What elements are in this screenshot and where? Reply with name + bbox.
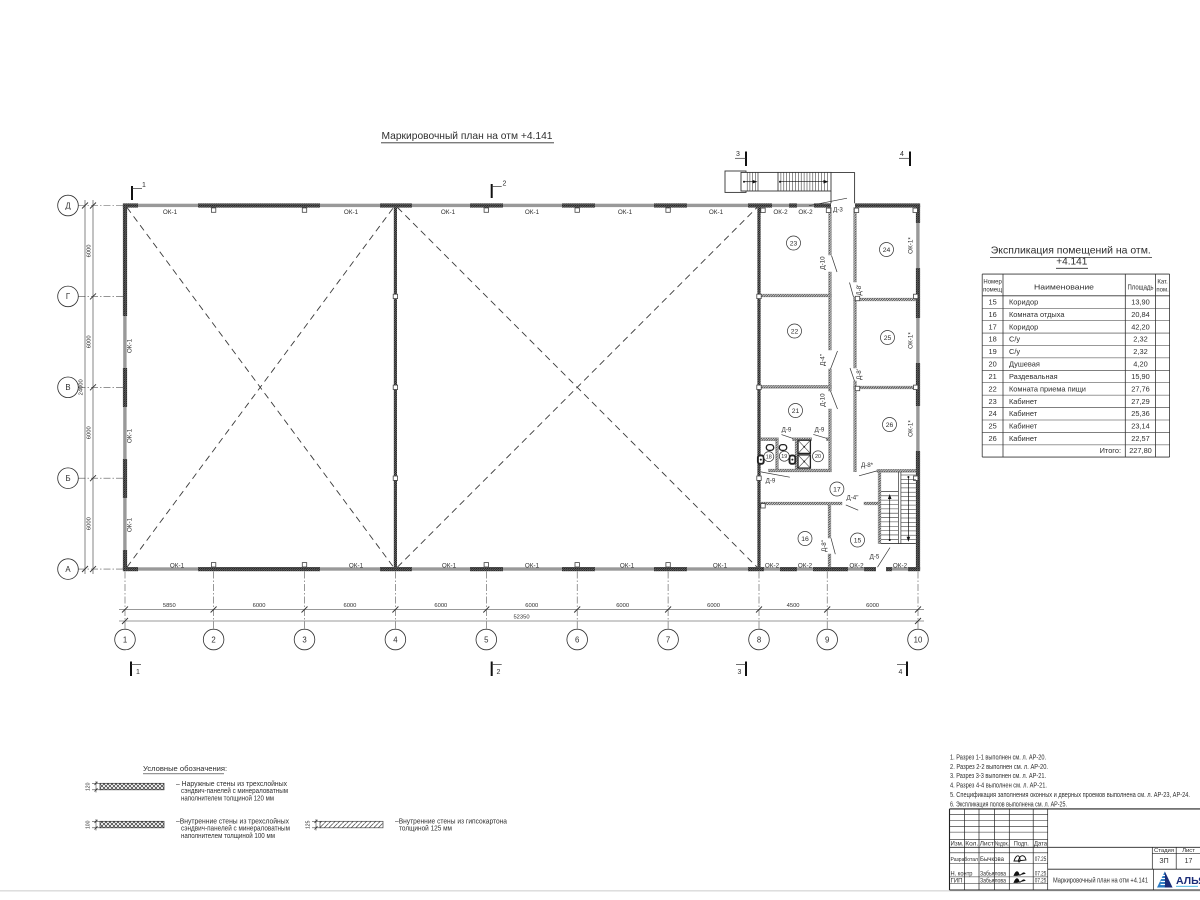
svg-text:4: 4	[899, 669, 903, 676]
svg-text:6000: 6000	[707, 603, 720, 609]
svg-text:1: 1	[123, 635, 127, 644]
svg-text:Д-9: Д-9	[782, 427, 792, 434]
svg-text:3: 3	[736, 151, 740, 158]
svg-text:Кабинет: Кабинет	[1009, 397, 1038, 406]
svg-text:4: 4	[900, 151, 904, 158]
svg-text:Коридор: Коридор	[1009, 297, 1038, 306]
svg-text:3: 3	[738, 669, 742, 676]
svg-text:17: 17	[988, 322, 996, 331]
svg-text:Стадия: Стадия	[1154, 848, 1174, 854]
svg-text:22: 22	[988, 384, 996, 393]
svg-text:Коридор: Коридор	[1009, 322, 1038, 331]
svg-text:Раздевальная: Раздевальная	[1009, 372, 1058, 381]
svg-text:23,14: 23,14	[1131, 422, 1150, 431]
svg-text:Экспликация помещений на отм.: Экспликация помещений на отм.	[991, 246, 1151, 257]
svg-text:Д-4": Д-4"	[819, 354, 826, 366]
svg-text:Номер: Номер	[983, 280, 1002, 286]
svg-text:2: 2	[211, 635, 215, 644]
svg-text:Комната приема пищи: Комната приема пищи	[1009, 384, 1086, 393]
svg-text:07.25: 07.25	[1035, 856, 1047, 863]
svg-text:23: 23	[988, 397, 996, 406]
svg-text:15: 15	[854, 537, 862, 544]
svg-text:ЗП: ЗП	[1159, 858, 1168, 865]
svg-text:07.25: 07.25	[1035, 870, 1047, 877]
svg-text:4: 4	[393, 635, 398, 644]
svg-text:В: В	[65, 383, 70, 392]
svg-text:Д-10: Д-10	[819, 393, 826, 407]
svg-text:наполнителем толщиной 100 мм: наполнителем толщиной 100 мм	[181, 832, 275, 840]
svg-text:2. Разрез 2-2 выполнен см. л.: 2. Разрез 2-2 выполнен см. л. АР-20.	[950, 763, 1048, 771]
svg-text:5. Спецификация заполнения око: 5. Спецификация заполнения оконных и две…	[950, 791, 1190, 799]
svg-text:13,90: 13,90	[1131, 297, 1150, 306]
svg-text:19: 19	[781, 454, 787, 460]
svg-text:26: 26	[988, 434, 996, 443]
svg-text:ОК-1: ОК-1	[442, 562, 457, 569]
svg-text:ОК-1*: ОК-1*	[907, 237, 914, 254]
svg-text:1: 1	[142, 182, 146, 189]
svg-text:5850: 5850	[163, 603, 176, 609]
svg-text:Душевая: Душевая	[1009, 360, 1040, 369]
svg-text:6000: 6000	[86, 426, 92, 439]
svg-text:26: 26	[886, 422, 894, 429]
svg-text:6. Экспликация полов выполнена: 6. Экспликация полов выполнена см. л. АР…	[950, 800, 1067, 808]
svg-text:ГИП: ГИП	[951, 877, 963, 884]
svg-text:Кабинет: Кабинет	[1009, 422, 1038, 431]
svg-text:ОК-1: ОК-1	[344, 209, 359, 216]
svg-text:6000: 6000	[343, 603, 356, 609]
svg-text:1: 1	[136, 669, 140, 676]
svg-text:20,84: 20,84	[1131, 310, 1150, 319]
svg-text:С/у: С/у	[1009, 347, 1020, 356]
svg-text:17: 17	[833, 486, 841, 493]
svg-text:Д-8': Д-8'	[856, 369, 863, 380]
svg-text:Н. контр: Н. контр	[951, 870, 974, 877]
svg-text:Д-8': Д-8'	[856, 285, 863, 296]
svg-text:27,29: 27,29	[1131, 397, 1150, 406]
svg-text:ОК-1: ОК-1	[127, 428, 134, 443]
svg-text:52350: 52350	[513, 615, 529, 621]
svg-text:25: 25	[884, 335, 892, 342]
svg-text:Б: Б	[65, 474, 70, 483]
svg-text:125: 125	[306, 820, 312, 829]
svg-text:Кол.: Кол.	[965, 841, 978, 848]
svg-text:6000: 6000	[866, 603, 879, 609]
svg-text:Кат.: Кат.	[1157, 280, 1168, 286]
svg-text:24: 24	[883, 247, 891, 254]
svg-text:ОК-1: ОК-1	[127, 338, 134, 353]
svg-text:Комната отдыха: Комната отдыха	[1009, 310, 1065, 319]
svg-text:2: 2	[503, 181, 507, 188]
svg-text:ОК-1*: ОК-1*	[907, 420, 914, 437]
svg-text:120: 120	[86, 782, 92, 791]
svg-text:Д-3: Д-3	[833, 207, 843, 214]
svg-text:ОК-2: ОК-2	[893, 562, 908, 569]
svg-text:помещ: помещ	[983, 288, 1002, 294]
svg-text:сэндвич-панелей с минераловатн: сэндвич-панелей с минераловатным	[181, 825, 290, 833]
svg-text:ОК-2: ОК-2	[773, 209, 788, 216]
svg-text:15,90: 15,90	[1131, 372, 1150, 381]
svg-text:толщиной 125 мм: толщиной 125 мм	[399, 825, 452, 833]
svg-text:Площадь: Площадь	[1128, 283, 1154, 292]
svg-text:100: 100	[86, 820, 92, 829]
svg-text:20: 20	[988, 360, 996, 369]
svg-text:Подп.: Подп.	[1014, 841, 1029, 848]
svg-text:2,32: 2,32	[1133, 347, 1147, 356]
svg-text:8: 8	[757, 635, 761, 644]
svg-text:6: 6	[575, 635, 579, 644]
svg-text:ОК-2: ОК-2	[849, 562, 864, 569]
svg-text:ОК-1*: ОК-1*	[907, 332, 914, 349]
svg-text:сэндвич-панелей с минераловатн: сэндвич-панелей с минераловатным	[181, 787, 288, 795]
svg-text:24000: 24000	[78, 379, 84, 395]
svg-text:№док.: №док.	[995, 841, 1009, 848]
svg-text:пом.: пом.	[1156, 288, 1169, 294]
svg-text:15: 15	[988, 297, 996, 306]
svg-text:21: 21	[792, 408, 800, 415]
svg-text:Изм.: Изм.	[951, 841, 964, 848]
svg-text:Итого:: Итого:	[1100, 446, 1121, 455]
svg-text:Д-5: Д-5	[870, 554, 880, 561]
svg-text:3: 3	[302, 635, 306, 644]
svg-text:ОК-1: ОК-1	[525, 209, 540, 216]
svg-text:Кабинет: Кабинет	[1009, 434, 1038, 443]
svg-text:6000: 6000	[616, 603, 629, 609]
svg-text:Д-9: Д-9	[766, 478, 776, 485]
svg-text:Условные обозначения:: Условные обозначения:	[143, 764, 227, 773]
svg-text:9: 9	[825, 635, 829, 644]
svg-text:ОК-1: ОК-1	[163, 209, 178, 216]
svg-text:С/у: С/у	[1009, 335, 1020, 344]
svg-text:наполнителем толщиной 120 мм: наполнителем толщиной 120 мм	[181, 794, 274, 802]
svg-text:2: 2	[497, 669, 501, 676]
svg-text:227,80: 227,80	[1129, 446, 1152, 455]
svg-text:18: 18	[988, 335, 996, 344]
svg-text:6000: 6000	[253, 603, 266, 609]
svg-text:Забьялова: Забьялова	[980, 877, 1007, 884]
svg-text:16: 16	[988, 310, 996, 319]
svg-text:25: 25	[988, 422, 996, 431]
svg-text:+4.141: +4.141	[1056, 256, 1087, 267]
svg-text:21: 21	[988, 372, 996, 381]
svg-text:ОК-1: ОК-1	[620, 562, 635, 569]
svg-text:Лист: Лист	[1182, 848, 1195, 854]
svg-text:Наименование: Наименование	[1034, 283, 1094, 292]
svg-text:4,20: 4,20	[1133, 360, 1147, 369]
svg-text:Разработал: Разработал	[951, 857, 979, 863]
svg-text:6000: 6000	[86, 335, 92, 348]
svg-text:10: 10	[914, 635, 923, 644]
svg-text:Д-8": Д-8"	[821, 540, 828, 552]
svg-text:4500: 4500	[787, 603, 800, 609]
svg-text:Д-9: Д-9	[815, 427, 825, 434]
svg-text:25,36: 25,36	[1131, 409, 1150, 418]
svg-text:20: 20	[815, 454, 821, 460]
svg-text:18: 18	[766, 455, 772, 461]
svg-text:22: 22	[791, 328, 799, 335]
svg-text:АЛЬЯ: АЛЬЯ	[1176, 875, 1200, 887]
svg-text:Д: Д	[65, 201, 71, 210]
svg-text:ОК-1: ОК-1	[170, 562, 185, 569]
svg-text:07.25: 07.25	[1035, 877, 1047, 884]
svg-text:16: 16	[801, 536, 809, 543]
svg-text:ОК-1: ОК-1	[709, 209, 724, 216]
svg-text:ОК-2: ОК-2	[765, 562, 780, 569]
svg-text:6000: 6000	[86, 517, 92, 530]
svg-text:5: 5	[484, 635, 489, 644]
svg-text:4. Разрез 4-4 выполнен см. л.: 4. Разрез 4-4 выполнен см. л. АР-21.	[950, 782, 1047, 790]
svg-text:–Внутренние стены из гипсокарт: –Внутренние стены из гипсокартона	[395, 819, 507, 826]
svg-text:Д-10: Д-10	[819, 256, 826, 270]
svg-text:6000: 6000	[86, 244, 92, 257]
svg-text:6000: 6000	[525, 603, 538, 609]
svg-text:Забьялова: Забьялова	[980, 870, 1007, 877]
svg-text:24: 24	[988, 409, 996, 418]
svg-text:ОК-1: ОК-1	[441, 209, 456, 216]
svg-text:ОК-1: ОК-1	[525, 562, 540, 569]
svg-text:22,57: 22,57	[1131, 434, 1150, 443]
svg-text:27,76: 27,76	[1131, 384, 1150, 393]
svg-text:Д-4": Д-4"	[847, 495, 859, 502]
svg-text:7: 7	[666, 635, 670, 644]
svg-text:19: 19	[988, 347, 996, 356]
svg-text:А: А	[65, 565, 71, 574]
svg-text:ОК-1: ОК-1	[127, 517, 134, 532]
svg-text:Бычкова: Бычкова	[980, 856, 1005, 863]
svg-text:3. Разрез 3-3 выполнен см. л.: 3. Разрез 3-3 выполнен см. л. АР-21.	[950, 772, 1046, 780]
svg-text:ОК-1: ОК-1	[713, 562, 728, 569]
svg-text:Кабинет: Кабинет	[1009, 409, 1038, 418]
svg-text:2,32: 2,32	[1133, 335, 1147, 344]
svg-text:Маркировочный план на отм +4.1: Маркировочный план на отм +4.141	[1053, 875, 1148, 884]
svg-text:ОК-2: ОК-2	[798, 562, 813, 569]
svg-text:Дата: Дата	[1034, 841, 1048, 848]
svg-text:– Наружные стены из трехслойны: – Наружные стены из трехслойных	[176, 780, 287, 788]
svg-text:23: 23	[790, 240, 798, 247]
svg-text:Д-8*: Д-8*	[861, 462, 874, 469]
svg-text:ОК-1: ОК-1	[349, 562, 364, 569]
svg-text:1. Разрез 1-1 выполнен см. л.: 1. Разрез 1-1 выполнен см. л. АР-20.	[950, 754, 1046, 762]
svg-text:42,20: 42,20	[1131, 322, 1150, 331]
svg-text:17: 17	[1185, 858, 1193, 865]
svg-text:–Внутренние стены из трехслойн: –Внутренние стены из трехслойных	[176, 818, 289, 826]
svg-text:Лист: Лист	[980, 841, 994, 848]
svg-text:Маркировочный план на отм +4.1: Маркировочный план на отм +4.141	[382, 131, 553, 142]
svg-text:6000: 6000	[434, 603, 447, 609]
svg-text:ОК-2: ОК-2	[798, 209, 813, 216]
svg-text:ОК-1: ОК-1	[618, 209, 633, 216]
